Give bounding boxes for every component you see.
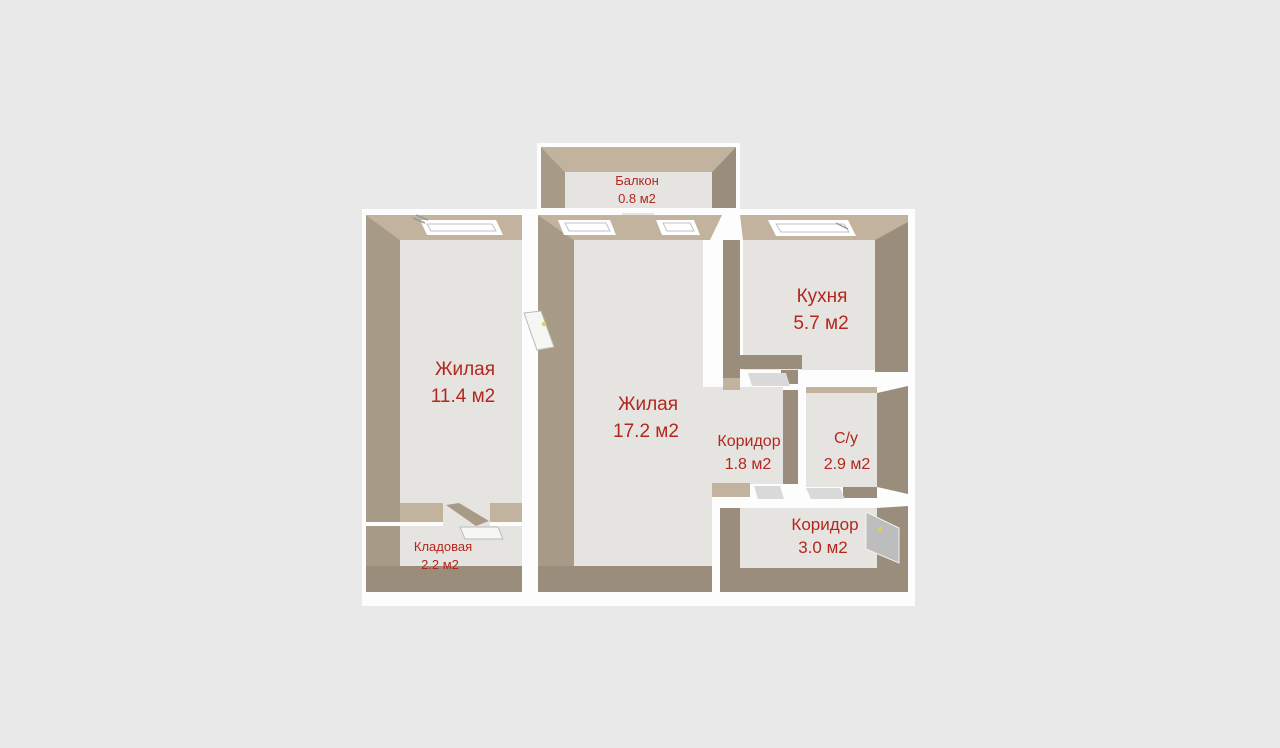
floorplan-screen: Балкон 0.8 м2 Жилая 11.4 м2 Жилая 17.2 м…	[0, 0, 1280, 748]
kitchen-divider-wall	[723, 240, 740, 378]
corridor1-right-wall	[783, 390, 798, 484]
bathroom-area: 2.9 м2	[824, 456, 871, 473]
corridor2-area: 3.0 м2	[798, 538, 848, 557]
living2-window-right-glass	[656, 220, 700, 235]
corridor1-bottom-wall	[712, 483, 750, 497]
bathroom-door-leaf	[806, 488, 845, 499]
living2-side-door-handle	[542, 322, 546, 326]
bathroom-right-wall	[877, 386, 908, 494]
living2-window-right	[656, 220, 700, 235]
living1-bottom-wall-left	[400, 503, 443, 522]
bathroom-bottom-wall	[843, 487, 877, 498]
corridor1-door-leaf	[754, 486, 784, 499]
kitchen-door-leaf	[748, 373, 790, 386]
corridor1-name: Коридор	[717, 433, 780, 450]
corridor2-name: Коридор	[791, 515, 858, 534]
kitchen-name: Кухня	[797, 286, 848, 307]
kitchen-bottom-wall	[740, 355, 802, 369]
living1-area: 11.4 м2	[431, 386, 495, 407]
living1-name: Жилая	[435, 359, 495, 380]
living2-name: Жилая	[618, 394, 678, 415]
living2-area: 17.2 м2	[613, 421, 679, 442]
kitchen-area: 5.7 м2	[793, 313, 848, 334]
storage-area: 2.2 м2	[421, 557, 459, 572]
living2-bottom-wall	[538, 566, 712, 592]
balcony-top-wall	[541, 147, 736, 172]
living2-left-wall	[538, 215, 574, 592]
storage-name: Кладовая	[414, 539, 472, 554]
floorplan-svg: Балкон 0.8 м2 Жилая 11.4 м2 Жилая 17.2 м…	[0, 0, 1280, 748]
balcony-name: Балкон	[615, 173, 659, 188]
entry-door-handle	[878, 527, 882, 531]
storage-door-leaf	[460, 527, 503, 539]
corridor1-area: 1.8 м2	[725, 456, 772, 473]
living1-window-glass	[420, 220, 503, 235]
bathroom-name: С/у	[834, 430, 858, 447]
kitchen-divider-cap	[723, 378, 740, 390]
living1-left-wall	[366, 215, 400, 522]
balcony-area: 0.8 м2	[618, 191, 656, 206]
bathroom-top-wall	[806, 387, 877, 393]
kitchen-right-wall	[875, 222, 908, 372]
storage-left-wall	[366, 526, 400, 566]
kitchen-window-glass	[768, 220, 856, 236]
living2-window-left	[558, 220, 616, 235]
kitchen-window	[768, 220, 856, 236]
living1-bottom-wall-right	[490, 503, 522, 522]
